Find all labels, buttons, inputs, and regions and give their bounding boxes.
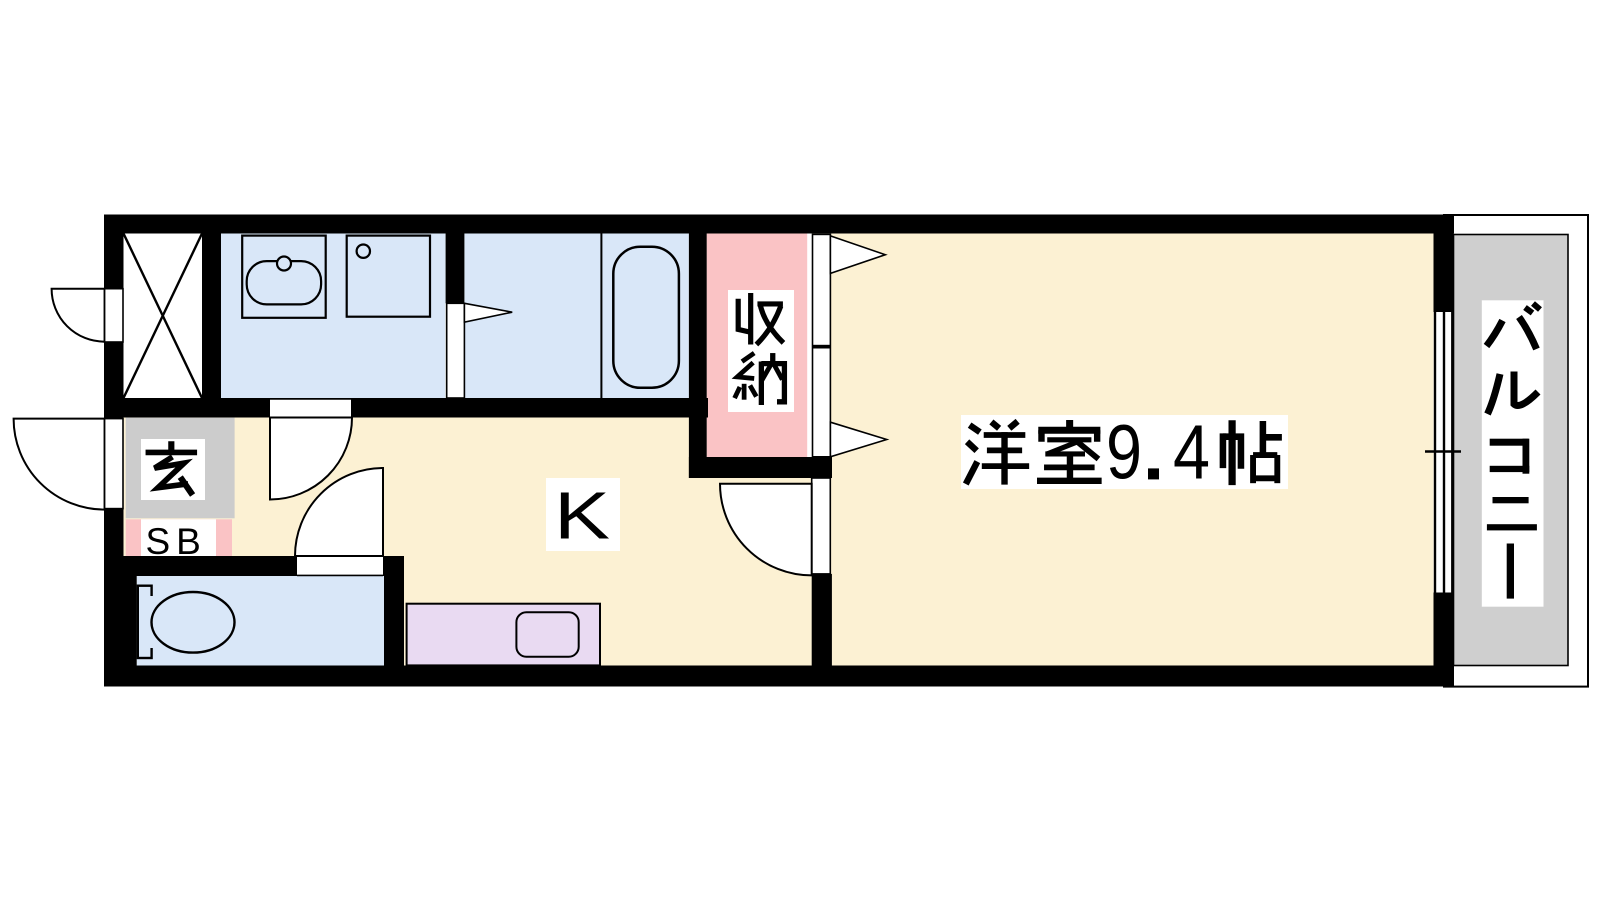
svg-text:4: 4 — [1173, 409, 1210, 495]
svg-text:9: 9 — [1106, 409, 1142, 495]
svg-text:SB: SB — [146, 521, 207, 562]
svg-text:K: K — [554, 479, 610, 554]
